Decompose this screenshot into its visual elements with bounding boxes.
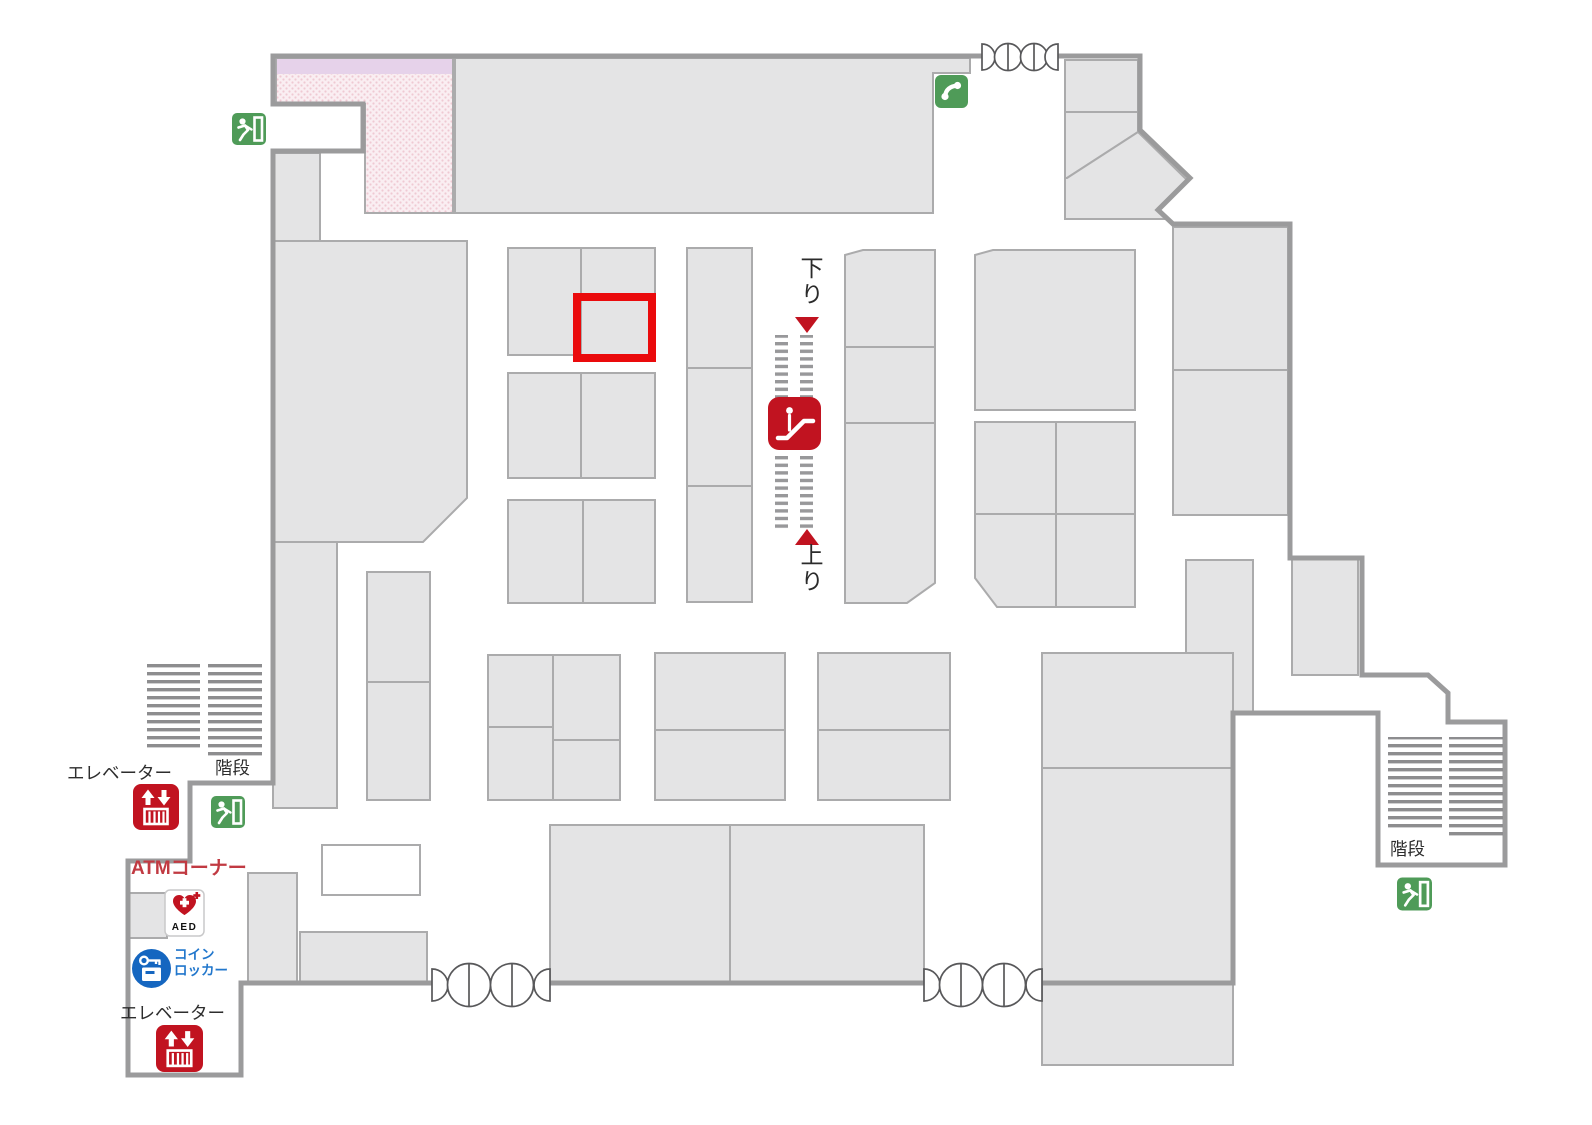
store-block (581, 248, 655, 355)
store-block (687, 486, 752, 602)
store-blocks (128, 58, 1358, 1065)
stairs-hatching-left (147, 660, 262, 757)
store-block (975, 250, 1135, 410)
store-block (845, 347, 935, 423)
store-block (655, 653, 785, 730)
store-block (508, 373, 581, 478)
store-block (508, 248, 581, 355)
store-block (1065, 60, 1138, 112)
store-block (367, 572, 430, 682)
highlight-zone-strip (277, 59, 452, 74)
store-block (583, 500, 655, 603)
revolving-door-icon (982, 44, 1058, 71)
service-counter-room (322, 845, 420, 895)
store-block (1292, 558, 1358, 675)
store-block (687, 248, 752, 368)
aed-label: AED (165, 922, 204, 933)
store-block (488, 655, 553, 727)
emergency-exit-icon (211, 796, 245, 828)
stairs-right-label: 階段 (1390, 836, 1425, 861)
stairs-hatching-right (1388, 737, 1503, 836)
store-block (845, 250, 935, 347)
store-block (273, 542, 337, 808)
store-block (300, 932, 427, 984)
store-block (1056, 514, 1135, 607)
escalator-down-label: 下り (793, 256, 827, 308)
store-block (1173, 370, 1288, 515)
elevator-icon (156, 1025, 203, 1072)
store-block (687, 368, 752, 486)
revolving-door-icon (432, 964, 550, 1007)
elevator-icon (133, 784, 179, 830)
store-block (1056, 422, 1135, 514)
elevator-lower-label: エレベーター (120, 1000, 225, 1025)
public-phone-icon (935, 75, 968, 108)
store-block (975, 422, 1056, 514)
store-block (367, 682, 430, 800)
store-block (274, 153, 320, 241)
coin-locker-label-line1: コイン (174, 947, 215, 963)
store-block (273, 241, 467, 542)
atm-machines-block (128, 893, 167, 938)
store-block (248, 873, 297, 984)
store-block (655, 730, 785, 800)
store-block (455, 58, 970, 213)
store-block (1042, 653, 1233, 1065)
store-block (581, 373, 655, 478)
store-block (845, 423, 935, 603)
store-block (818, 653, 950, 730)
escalator-icon (768, 397, 821, 450)
coin-locker-label-line2: ロッカー (174, 963, 228, 979)
revolving-door-icon (924, 964, 1042, 1007)
store-block (553, 740, 620, 800)
store-block (488, 727, 553, 800)
store-block (818, 730, 950, 800)
stairs-left-label: 階段 (215, 755, 250, 780)
elevator-upper-label: エレベーター (67, 760, 172, 785)
store-block (1173, 227, 1288, 370)
escalator-up-label: 上り (793, 543, 827, 595)
down-arrow-icon (795, 317, 819, 333)
store-block (975, 514, 1056, 607)
emergency-exit-icon (232, 113, 266, 145)
emergency-exit-icon (1397, 878, 1432, 911)
store-block (550, 825, 924, 984)
store-block (508, 500, 583, 603)
atm-corner-label: ATMコーナー (131, 853, 247, 880)
coin-locker-icon (132, 949, 171, 988)
floor-map: 下り 上り エレベーター 階段 ATMコーナー AED コイン ロッカー エレベ… (0, 0, 1592, 1125)
store-block (553, 655, 620, 740)
